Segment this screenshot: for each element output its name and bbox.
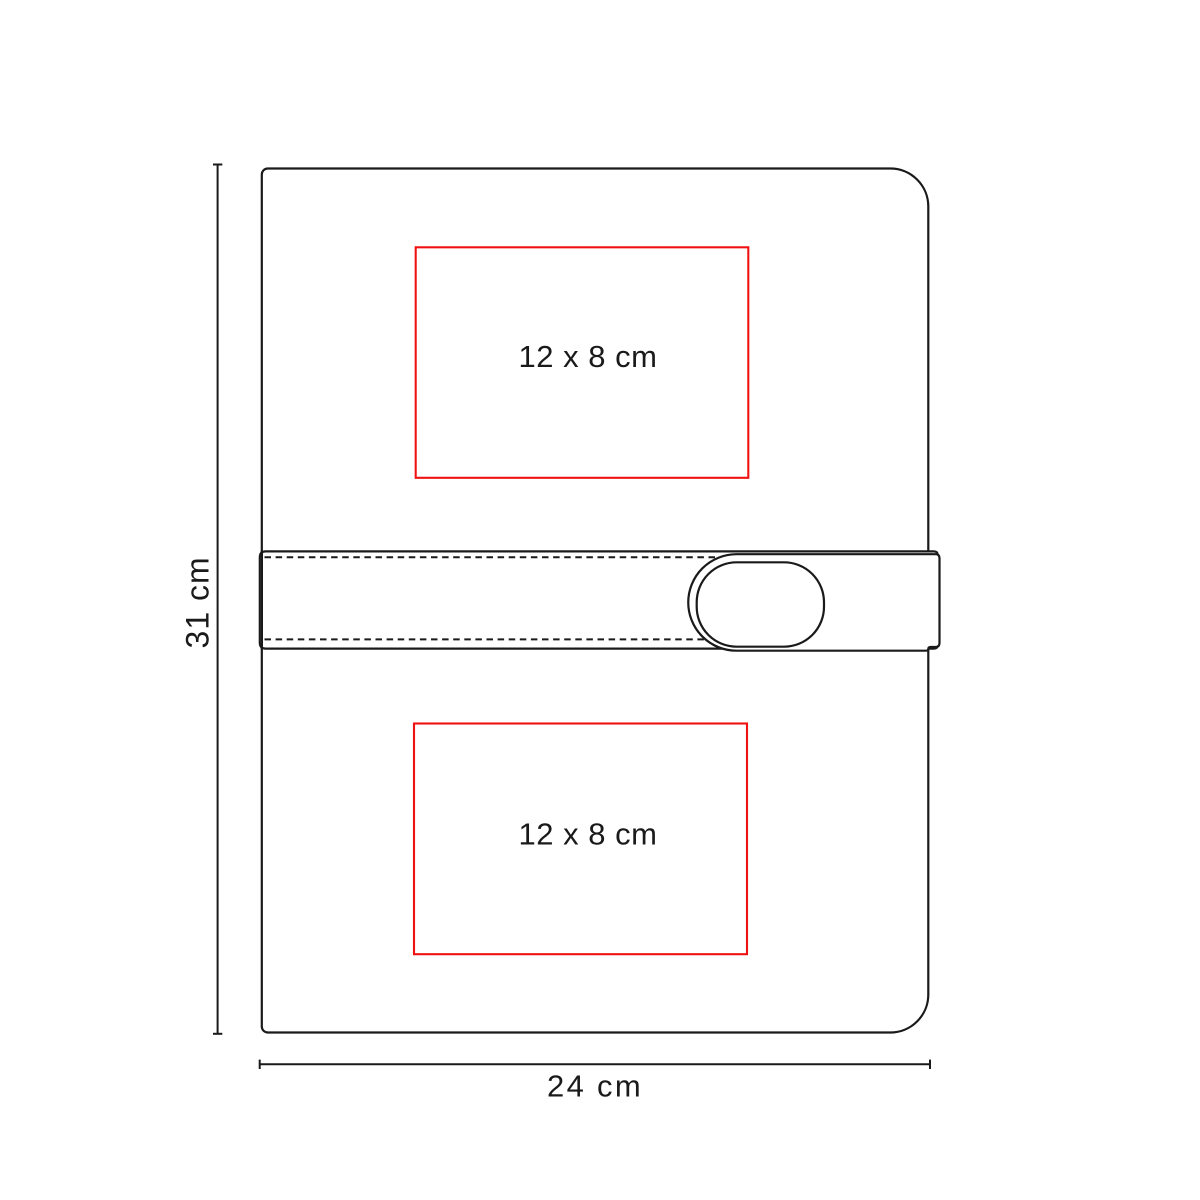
svg-text:31 cm: 31 cm [180, 556, 216, 648]
svg-text:12 x 8 cm: 12 x 8 cm [519, 339, 658, 374]
svg-text:24 cm: 24 cm [547, 1069, 643, 1104]
svg-text:12 x 8 cm: 12 x 8 cm [519, 817, 658, 852]
